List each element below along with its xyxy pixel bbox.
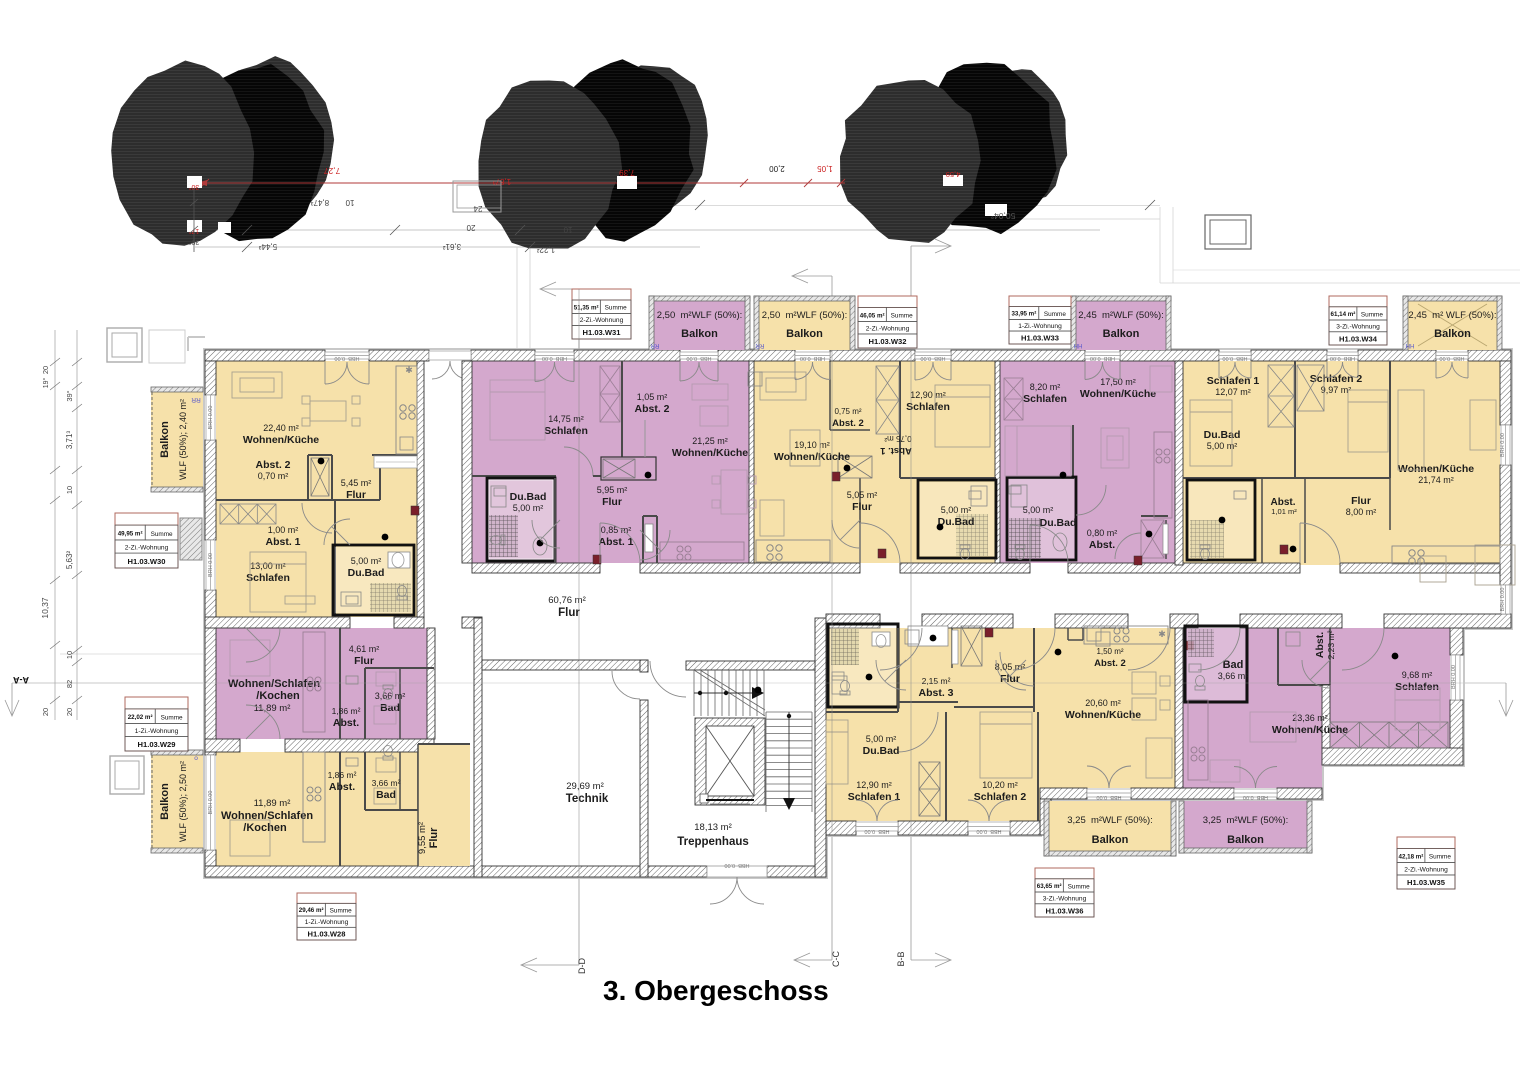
- svg-text:Flur: Flur: [346, 489, 366, 501]
- svg-text:✱: ✱: [1158, 629, 1166, 639]
- svg-text:Du.Bad: Du.Bad: [1204, 429, 1241, 441]
- svg-text:1,86 m²: 1,86 m²: [332, 706, 361, 716]
- svg-text:20,60 m²: 20,60 m²: [1085, 698, 1121, 708]
- svg-text:BRH 0.00: BRH 0.00: [208, 406, 214, 430]
- svg-text:Flur: Flur: [428, 827, 440, 848]
- svg-text:1,01 m²: 1,01 m²: [1271, 507, 1297, 516]
- svg-text:Summe: Summe: [161, 714, 183, 721]
- svg-text:Du.Bad: Du.Bad: [1040, 517, 1077, 529]
- svg-text:o: o: [194, 755, 198, 762]
- svg-text:HBB 0.00: HBB 0.00: [1222, 355, 1247, 361]
- svg-text:1,00 m²: 1,00 m²: [268, 525, 299, 535]
- svg-text:Bad: Bad: [380, 702, 400, 714]
- svg-text:HBB 0.00: HBB 0.00: [724, 862, 749, 868]
- svg-text:HH: HH: [1406, 342, 1415, 348]
- svg-text:WLF (50%); 2,40 m²: WLF (50%); 2,40 m²: [178, 399, 188, 480]
- svg-text:Abst. 1: Abst. 1: [879, 445, 911, 456]
- svg-text:HBB 0.00: HBB 0.00: [800, 355, 825, 361]
- svg-text:Wohnen/Küche: Wohnen/Küche: [1080, 388, 1156, 400]
- svg-text:Wohnen/Küche: Wohnen/Küche: [243, 434, 319, 446]
- svg-text:HBB 0.00: HBB 0.00: [920, 355, 945, 361]
- svg-text:Wohnen/Küche: Wohnen/Küche: [672, 447, 748, 459]
- svg-text:11,89 m²: 11,89 m²: [254, 798, 291, 809]
- svg-text:HBB 0.00: HBB 0.00: [976, 828, 1001, 834]
- svg-text:5,00 m²: 5,00 m²: [351, 556, 382, 566]
- svg-text:H1.03.W29: H1.03.W29: [138, 740, 176, 749]
- svg-text:B-B: B-B: [896, 951, 906, 966]
- svg-text:Du.Bad: Du.Bad: [510, 491, 547, 503]
- svg-text:Schlafen: Schlafen: [544, 425, 588, 437]
- svg-text:8,00 m²: 8,00 m²: [1346, 507, 1377, 517]
- svg-text:Bad: Bad: [376, 789, 396, 801]
- svg-text:2-Zi.-Wohnung: 2-Zi.-Wohnung: [866, 325, 910, 332]
- svg-text:5,00 m²: 5,00 m²: [941, 505, 972, 515]
- svg-text:H1.03.W33: H1.03.W33: [1021, 333, 1059, 342]
- svg-text:Balkon: Balkon: [1434, 328, 1471, 340]
- svg-text:63,65 m²: 63,65 m²: [1037, 883, 1062, 890]
- svg-text:HBB 0.00: HBB 0.00: [1439, 355, 1464, 361]
- svg-text:Summe: Summe: [1044, 311, 1066, 318]
- svg-text:Summe: Summe: [1429, 854, 1451, 861]
- svg-text:HBB 0.00: HBB 0.00: [542, 355, 567, 361]
- svg-text:Summe: Summe: [605, 305, 627, 312]
- svg-text:2,00: 2,00: [769, 164, 785, 173]
- svg-text:14,75 m²: 14,75 m²: [548, 414, 584, 424]
- svg-text:Balkon: Balkon: [159, 783, 171, 820]
- svg-text:19,10 m²: 19,10 m²: [794, 440, 830, 450]
- svg-text:Wohnen/Küche: Wohnen/Küche: [1398, 463, 1474, 475]
- svg-text:0,80 m²: 0,80 m²: [1087, 528, 1118, 538]
- svg-text:1,50 m²: 1,50 m²: [1096, 647, 1123, 656]
- svg-text:Du.Bad: Du.Bad: [863, 745, 900, 757]
- svg-text:H1.03.W35: H1.03.W35: [1407, 878, 1446, 887]
- svg-text:Abst. 3: Abst. 3: [918, 687, 953, 699]
- svg-text:39°: 39°: [65, 390, 74, 401]
- svg-text:82: 82: [65, 680, 74, 688]
- svg-text:21,74 m²: 21,74 m²: [1418, 475, 1454, 485]
- svg-text:10: 10: [65, 651, 74, 659]
- svg-text:2,50 m²WLF (50%):: 2,50 m²WLF (50%):: [657, 310, 743, 321]
- svg-text:A-A: A-A: [13, 675, 29, 685]
- svg-text:0,75 m²: 0,75 m²: [884, 434, 911, 443]
- svg-text:20: 20: [41, 708, 50, 716]
- svg-text:18,13 m²: 18,13 m²: [694, 822, 732, 833]
- svg-text:2,15 m²: 2,15 m²: [922, 676, 951, 686]
- svg-text:0,75 m²: 0,75 m²: [834, 407, 861, 416]
- svg-text:BRH 0.00: BRH 0.00: [208, 791, 214, 815]
- svg-text:Abst.: Abst.: [1314, 632, 1326, 658]
- svg-text:HBB 0.00: HBB 0.00: [1090, 355, 1115, 361]
- svg-text:RR: RR: [755, 342, 764, 348]
- svg-text:WLF (50%); 2,50 m²: WLF (50%); 2,50 m²: [178, 761, 188, 842]
- svg-text:Balkon: Balkon: [786, 328, 823, 340]
- svg-text:Summe: Summe: [151, 531, 173, 538]
- svg-text:✱: ✱: [405, 365, 413, 375]
- svg-text:21,25 m²: 21,25 m²: [692, 436, 728, 446]
- svg-text:10,37: 10,37: [40, 597, 50, 619]
- svg-text:1-Zi.-Wohnung: 1-Zi.-Wohnung: [305, 919, 349, 926]
- svg-text:61,14 m²: 61,14 m²: [1331, 311, 1356, 318]
- svg-text:Balkon: Balkon: [159, 421, 171, 458]
- svg-text:22,02 m²: 22,02 m²: [128, 714, 153, 721]
- svg-text:HBB 0.00: HBB 0.00: [864, 828, 889, 834]
- svg-text:3,25 m²WLF (50%):: 3,25 m²WLF (50%):: [1067, 815, 1153, 826]
- svg-text:20: 20: [65, 708, 74, 716]
- svg-text:BRH 0.00: BRH 0.00: [1500, 433, 1506, 457]
- svg-text:Flur: Flur: [602, 496, 622, 508]
- svg-text:Abst.: Abst.: [333, 717, 359, 729]
- svg-text:Wohnen/Küche: Wohnen/Küche: [1065, 709, 1141, 721]
- svg-text:12,90 m²: 12,90 m²: [910, 390, 946, 400]
- svg-text:Summe: Summe: [1068, 883, 1090, 890]
- svg-text:H1.03.W31: H1.03.W31: [583, 328, 622, 337]
- svg-text:Abst. 1: Abst. 1: [265, 536, 300, 548]
- svg-text:2-Zi.-Wohnung: 2-Zi.-Wohnung: [580, 317, 624, 324]
- svg-text:Abst. 2: Abst. 2: [832, 418, 864, 429]
- svg-text:5,00 m²: 5,00 m²: [866, 734, 897, 744]
- svg-text:9,68 m²: 9,68 m²: [1402, 670, 1433, 680]
- svg-text:1-Zi.-Wohnung: 1-Zi.-Wohnung: [1018, 323, 1062, 330]
- svg-text:Flur: Flur: [852, 501, 872, 513]
- svg-text:12,07 m²: 12,07 m²: [1215, 387, 1251, 397]
- svg-text:46,05 m²: 46,05 m²: [860, 312, 885, 319]
- svg-text:Summe: Summe: [891, 313, 913, 320]
- svg-text:17,50 m²: 17,50 m²: [1100, 377, 1136, 387]
- svg-text:Balkon: Balkon: [1227, 834, 1264, 846]
- svg-text:Abst. 2: Abst. 2: [1094, 658, 1126, 669]
- svg-text:2,50 m²WLF (50%):: 2,50 m²WLF (50%):: [762, 310, 848, 321]
- svg-text:20: 20: [466, 223, 475, 232]
- svg-text:3,61²: 3,61²: [443, 242, 462, 251]
- svg-text:4,61 m²: 4,61 m²: [349, 644, 380, 654]
- svg-text:5,00 m²: 5,00 m²: [1023, 505, 1054, 515]
- svg-text:1,05: 1,05: [817, 164, 833, 173]
- svg-text:1,22²: 1,22²: [537, 245, 556, 254]
- svg-text:H1.03.W36: H1.03.W36: [1046, 906, 1084, 915]
- svg-text:2,23 m²: 2,23 m²: [1326, 630, 1336, 659]
- svg-text:Schlafen: Schlafen: [1023, 393, 1067, 405]
- svg-text:10: 10: [65, 486, 74, 494]
- svg-text:50,04°: 50,04°: [991, 211, 1016, 221]
- svg-text:HBB 0.00: HBB 0.00: [686, 355, 711, 361]
- svg-text:HBB 0.00: HBB 0.00: [334, 355, 359, 361]
- svg-text:HH: HH: [1074, 342, 1083, 348]
- svg-text:11,89 m²: 11,89 m²: [254, 703, 291, 714]
- svg-text:5,00 m²: 5,00 m²: [1207, 441, 1238, 451]
- svg-text:4,59: 4,59: [946, 170, 961, 179]
- svg-text:5,00 m²: 5,00 m²: [513, 503, 544, 513]
- svg-text:33,95 m²: 33,95 m²: [1011, 311, 1036, 318]
- svg-text:10,20 m²: 10,20 m²: [982, 780, 1018, 790]
- svg-text:/Kochen: /Kochen: [256, 690, 300, 702]
- svg-text:20: 20: [41, 366, 50, 374]
- svg-text:5,44³: 5,44³: [259, 242, 278, 251]
- svg-text:Schlafen 1: Schlafen 1: [848, 791, 901, 803]
- svg-text:2,45 m² WLF (50%):: 2,45 m² WLF (50%):: [1408, 310, 1496, 321]
- svg-text:Summe: Summe: [330, 907, 352, 914]
- svg-text:2,45 m²WLF (50%):: 2,45 m²WLF (50%):: [1078, 310, 1164, 321]
- svg-text:H1.03.W30: H1.03.W30: [128, 557, 166, 566]
- svg-text:HBB 0.00: HBB 0.00: [1096, 794, 1121, 800]
- svg-text:0,70 m²: 0,70 m²: [258, 471, 289, 481]
- svg-text:24: 24: [473, 204, 482, 213]
- svg-text:3,66 m²: 3,66 m²: [372, 778, 401, 788]
- svg-text:C-C: C-C: [831, 951, 841, 967]
- svg-text:19°: 19°: [42, 378, 50, 389]
- svg-text:42,18 m²: 42,18 m²: [1399, 853, 1424, 860]
- svg-text:5,63²: 5,63²: [65, 551, 74, 570]
- svg-text:Schlafen 2: Schlafen 2: [974, 791, 1027, 803]
- svg-text:1,05 m²: 1,05 m²: [637, 392, 668, 402]
- svg-text:Flur: Flur: [354, 655, 374, 667]
- svg-text:Bad: Bad: [1223, 659, 1244, 671]
- svg-text:Wohnen/Küche: Wohnen/Küche: [774, 451, 850, 463]
- svg-text:3,66 m²: 3,66 m²: [375, 691, 406, 701]
- svg-text:BRH 0.00: BRH 0.00: [208, 553, 214, 577]
- svg-text:1,86 m²: 1,86 m²: [328, 770, 357, 780]
- svg-text:3,71³: 3,71³: [65, 431, 74, 450]
- svg-text:10: 10: [563, 225, 572, 234]
- svg-text:7,39: 7,39: [619, 168, 635, 177]
- svg-text:Du.Bad: Du.Bad: [348, 567, 385, 579]
- svg-text:3. Obergeschoss: 3. Obergeschoss: [603, 975, 829, 1006]
- svg-text:1-Zi.-Wohnung: 1-Zi.-Wohnung: [135, 728, 179, 735]
- svg-text:2-Zi.-Wohnung: 2-Zi.-Wohnung: [1404, 866, 1448, 873]
- svg-text:Technik: Technik: [566, 793, 609, 805]
- svg-text:2-Zi.-Wohnung: 2-Zi.-Wohnung: [125, 544, 169, 551]
- svg-text:5,05 m²: 5,05 m²: [847, 490, 878, 500]
- svg-text:HBB 0.00: HBB 0.00: [1330, 355, 1355, 361]
- svg-text:Schlafen 1: Schlafen 1: [1207, 375, 1260, 387]
- svg-text:60,76 m²: 60,76 m²: [548, 595, 586, 606]
- svg-text:H1.03.W34: H1.03.W34: [1339, 334, 1378, 343]
- svg-text:D-D: D-D: [577, 958, 587, 974]
- svg-text:29,69 m²: 29,69 m²: [566, 781, 604, 792]
- svg-text:3,66 m²: 3,66 m²: [1218, 671, 1249, 681]
- svg-text:Abst.: Abst.: [329, 781, 355, 793]
- svg-text:Wohnen/Küche: Wohnen/Küche: [1272, 724, 1348, 736]
- svg-text:Treppenhaus: Treppenhaus: [677, 836, 749, 848]
- svg-text:H1.03.W28: H1.03.W28: [308, 929, 346, 938]
- svg-text:5,95 m²: 5,95 m²: [597, 485, 628, 495]
- svg-text:29,46 m²: 29,46 m²: [299, 907, 324, 914]
- svg-text:51,35 m²: 51,35 m²: [574, 304, 599, 311]
- svg-text:7,27: 7,27: [323, 166, 340, 176]
- svg-text:3-Zi.-Wohnung: 3-Zi.-Wohnung: [1043, 895, 1087, 902]
- svg-text:10: 10: [345, 198, 354, 207]
- svg-text:Schlafen: Schlafen: [906, 401, 950, 413]
- svg-text:22,40 m²: 22,40 m²: [263, 423, 299, 433]
- svg-text:RR: RR: [650, 342, 659, 348]
- svg-text:BRH 0.00: BRH 0.00: [1500, 588, 1506, 612]
- svg-text:23,36 m²: 23,36 m²: [1292, 713, 1328, 723]
- svg-text:RR: RR: [191, 396, 201, 403]
- svg-text:Balkon: Balkon: [1092, 834, 1129, 846]
- svg-text:Abst.: Abst.: [1089, 539, 1115, 551]
- svg-text:Summe: Summe: [1361, 311, 1383, 318]
- svg-text:8,05 m²: 8,05 m²: [995, 662, 1026, 672]
- svg-text:8,47³: 8,47³: [311, 198, 330, 207]
- svg-text:Abst. 1: Abst. 1: [598, 536, 633, 548]
- svg-text:49,95 m²: 49,95 m²: [118, 530, 143, 537]
- svg-text:9,55 m²: 9,55 m²: [417, 822, 428, 854]
- svg-text:Flur: Flur: [558, 607, 580, 619]
- svg-text:5,45 m²: 5,45 m²: [341, 478, 372, 488]
- svg-text:HBB 0.00: HBB 0.00: [1243, 794, 1268, 800]
- svg-text:H1.03.W32: H1.03.W32: [869, 337, 907, 346]
- svg-text:3-Zi.-Wohnung: 3-Zi.-Wohnung: [1336, 323, 1380, 330]
- svg-text:Abst. 2: Abst. 2: [255, 459, 290, 471]
- svg-text:Flur: Flur: [1351, 495, 1371, 507]
- svg-text:Abst. 2: Abst. 2: [634, 403, 669, 415]
- svg-text:12,90 m²: 12,90 m²: [856, 780, 892, 790]
- svg-text:13,00 m²: 13,00 m²: [250, 561, 286, 571]
- svg-text:BRH 0.00: BRH 0.00: [1451, 665, 1457, 689]
- svg-text:3,25 m²WLF (50%):: 3,25 m²WLF (50%):: [1203, 815, 1289, 826]
- svg-text:Balkon: Balkon: [681, 328, 718, 340]
- svg-text:9,97 m²: 9,97 m²: [1321, 385, 1352, 395]
- svg-text:Wohnen/Schlafen: Wohnen/Schlafen: [228, 678, 320, 690]
- svg-text:8,20 m²: 8,20 m²: [1030, 382, 1061, 392]
- svg-text:Balkon: Balkon: [1103, 328, 1140, 340]
- svg-text:Schlafen: Schlafen: [246, 572, 290, 584]
- svg-text:/Kochen: /Kochen: [243, 822, 287, 834]
